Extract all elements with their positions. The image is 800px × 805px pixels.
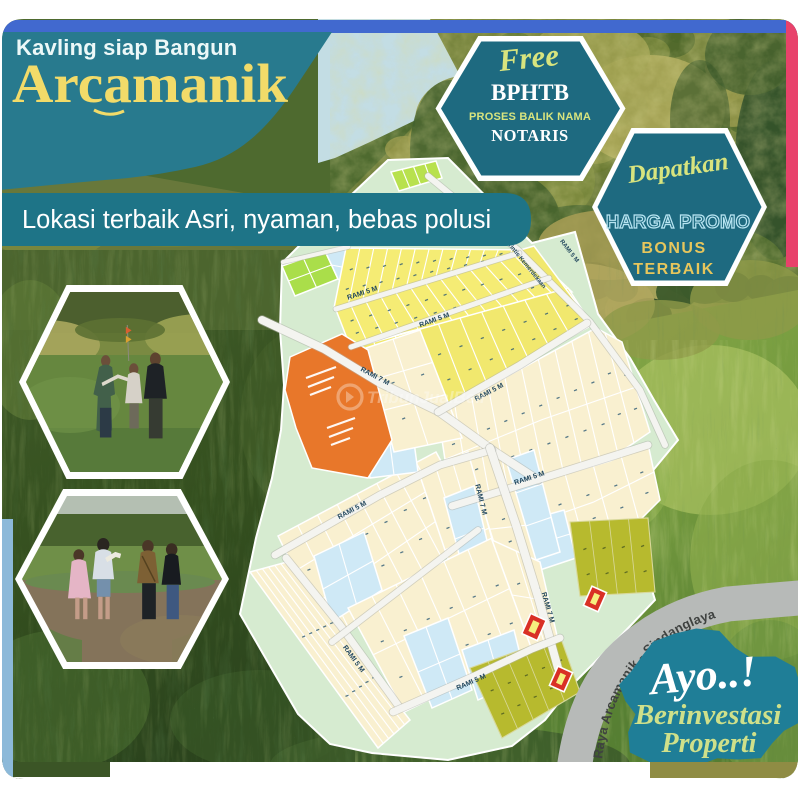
svg-text:BONUS: BONUS (641, 240, 706, 257)
svg-text:Ayo..!: Ayo..! (645, 646, 759, 704)
svg-text:NOTARIS: NOTARIS (491, 126, 568, 145)
svg-text:Lokasi terbaik Asri, nyaman, b: Lokasi terbaik Asri, nyaman, bebas polus… (22, 206, 491, 234)
svg-text:Arcamanik: Arcamanik (12, 53, 288, 114)
svg-text:PROSES BALIK NAMA: PROSES BALIK NAMA (469, 111, 591, 123)
svg-text:HARGA PROMO: HARGA PROMO (606, 211, 750, 232)
svg-text:Properti: Properti (661, 728, 757, 759)
svg-text:BPHTB: BPHTB (491, 80, 569, 105)
svg-text:Free: Free (496, 37, 561, 78)
svg-text:TERBAIK: TERBAIK (633, 261, 715, 278)
svg-text:Berinvestasi: Berinvestasi (634, 699, 782, 731)
svg-text:TribunJualBeli: TribunJualBeli (367, 388, 486, 407)
